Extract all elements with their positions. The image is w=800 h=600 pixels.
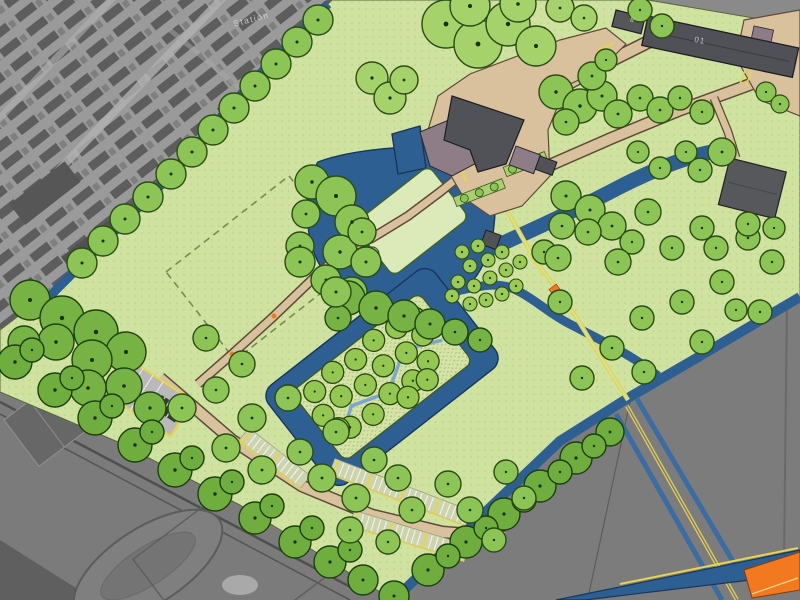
- tree-center-dot: [589, 209, 592, 212]
- tree-center-dot: [373, 459, 376, 462]
- tree-center-dot: [275, 63, 278, 66]
- tree-center-dot: [747, 237, 749, 239]
- tree-center-dot: [583, 17, 586, 20]
- tree-center-dot: [501, 251, 503, 253]
- tree-center-dot: [643, 371, 645, 373]
- tree-center-dot: [191, 457, 193, 459]
- tree-center-dot: [681, 301, 683, 303]
- tree-center-dot: [411, 509, 414, 512]
- tree-center-dot: [374, 306, 377, 309]
- tree-center-dot: [349, 529, 352, 532]
- tree-center-dot: [659, 109, 662, 112]
- tree-center-dot: [559, 301, 561, 303]
- tree-center-dot: [701, 341, 703, 343]
- tree-center-dot: [505, 471, 507, 473]
- tree-center-dot: [293, 540, 296, 543]
- tree-center-dot: [747, 223, 749, 225]
- tree-center-dot: [53, 388, 56, 391]
- tree-center-dot: [111, 405, 113, 407]
- tree-center-dot: [538, 484, 541, 487]
- tree-center-dot: [86, 386, 90, 390]
- tree-center-dot: [469, 265, 471, 267]
- tree-center-dot: [543, 251, 545, 253]
- tree-center-dot: [335, 431, 338, 434]
- tree-center-dot: [469, 303, 471, 305]
- tree-center-dot: [451, 295, 453, 297]
- tree-center-dot: [609, 431, 612, 434]
- tree-center-dot: [147, 196, 150, 199]
- tree-center-dot: [321, 477, 324, 480]
- tree-center-dot: [502, 512, 505, 515]
- tree-center-dot: [205, 337, 208, 340]
- tree-center-dot: [402, 314, 405, 317]
- tree-center-dot: [661, 25, 663, 27]
- tree-center-dot: [515, 285, 517, 287]
- tree-center-dot: [447, 483, 450, 486]
- tree-center-dot: [587, 231, 590, 234]
- tree-center-dot: [611, 347, 613, 349]
- tree-center-dot: [701, 227, 703, 229]
- tree-center-dot: [54, 340, 58, 344]
- tree-center-dot: [233, 107, 236, 110]
- tree-icon: [546, 0, 574, 22]
- tree-center-dot: [554, 90, 557, 93]
- tree-center-dot: [310, 180, 313, 183]
- tree-center-dot: [523, 497, 525, 499]
- tree-center-dot: [334, 194, 338, 198]
- tree-center-dot: [611, 225, 614, 228]
- tree-center-dot: [133, 443, 136, 446]
- tree-center-dot: [170, 173, 173, 176]
- tree-center-dot: [477, 245, 479, 247]
- tree-center-dot: [253, 516, 256, 519]
- tree-center-dot: [28, 298, 32, 302]
- tree-center-dot: [659, 167, 661, 169]
- tree-center-dot: [601, 95, 604, 98]
- tree-center-dot: [31, 349, 33, 351]
- tree-center-dot: [93, 416, 96, 419]
- tree-center-dot: [365, 261, 368, 264]
- tree-center-dot: [388, 96, 391, 99]
- tree-center-dot: [403, 79, 406, 82]
- tree-center-dot: [299, 451, 302, 454]
- tree-center-dot: [505, 269, 507, 271]
- tree-center-dot: [561, 225, 564, 228]
- tree-center-dot: [641, 317, 643, 319]
- tree-center-dot: [429, 323, 432, 326]
- tree-center-dot: [685, 151, 687, 153]
- tree-center-dot: [771, 261, 773, 263]
- tree-center-dot: [81, 262, 84, 265]
- tree-center-dot: [447, 555, 449, 557]
- tree-center-dot: [251, 417, 254, 420]
- tree-center-dot: [759, 311, 761, 313]
- tree-center-dot: [559, 7, 562, 10]
- tree-center-dot: [225, 447, 228, 450]
- tree-center-dot: [485, 527, 487, 529]
- tree-center-dot: [581, 377, 583, 379]
- tree-center-dot: [94, 330, 98, 334]
- tree-center-dot: [534, 44, 538, 48]
- tree-center-dot: [671, 247, 673, 249]
- tree-center-dot: [765, 91, 767, 93]
- tree-center-dot: [271, 505, 273, 507]
- tree-center-dot: [261, 469, 264, 472]
- tree-center-dot: [397, 477, 400, 480]
- tree-center-dot: [468, 4, 472, 8]
- tree-center-dot: [591, 75, 594, 78]
- tree-center-dot: [254, 85, 257, 88]
- tree-center-dot: [181, 407, 184, 410]
- tree-center-dot: [350, 220, 353, 223]
- tree-center-dot: [565, 195, 568, 198]
- tree-center-dot: [124, 218, 127, 221]
- tree-center-dot: [305, 213, 308, 216]
- tree-center-dot: [241, 363, 244, 366]
- tree-center-dot: [473, 285, 475, 287]
- tree-center-dot: [489, 277, 491, 279]
- tree-center-dot: [485, 299, 487, 301]
- tree-center-dot: [457, 281, 459, 283]
- tree-center-dot: [338, 250, 341, 253]
- tree-center-dot: [317, 19, 320, 22]
- tree-center-dot: [701, 111, 703, 113]
- tree-center-dot: [637, 151, 639, 153]
- tree-center-dot: [559, 471, 561, 473]
- tree-center-dot: [631, 241, 633, 243]
- tree-center-dot: [173, 468, 176, 471]
- tree-center-dot: [287, 397, 290, 400]
- tree-center-dot: [349, 549, 351, 551]
- tree-center-dot: [557, 257, 560, 260]
- tree-center-dot: [213, 492, 216, 495]
- tree-center-dot: [721, 151, 724, 154]
- tree-center-dot: [311, 527, 313, 529]
- tree-center-dot: [337, 317, 340, 320]
- masterplan-canvas[interactable]: Station: [0, 0, 800, 600]
- tree-center-dot: [574, 456, 577, 459]
- tree-center-dot: [647, 211, 650, 214]
- tree-center-dot: [355, 497, 358, 500]
- tree-center-dot: [779, 103, 781, 105]
- tree-center-dot: [773, 227, 775, 229]
- tree-center-dot: [387, 541, 389, 543]
- tree-center-dot: [593, 445, 595, 447]
- tree-center-dot: [519, 261, 521, 263]
- tree-center-dot: [361, 231, 364, 234]
- tree-center-dot: [617, 113, 620, 116]
- tree-center-dot: [578, 104, 581, 107]
- tree-center-dot: [639, 97, 642, 100]
- tree-center-dot: [516, 2, 520, 6]
- tree-center-dot: [617, 261, 620, 264]
- tree-center-dot: [721, 281, 723, 283]
- tree-center-dot: [735, 309, 737, 311]
- tree-center-dot: [565, 121, 568, 124]
- tree-center-dot: [426, 568, 429, 571]
- masterplan-svg: Station: [0, 0, 800, 600]
- tree-center-dot: [639, 9, 641, 11]
- tree-center-dot: [461, 251, 463, 253]
- tree-center-dot: [679, 97, 681, 99]
- tree-center-dot: [122, 384, 126, 388]
- tree-center-dot: [469, 509, 472, 512]
- tree-center-dot: [60, 316, 64, 320]
- tree-center-dot: [444, 22, 449, 27]
- tree-center-dot: [487, 259, 489, 261]
- tree-center-dot: [506, 22, 510, 26]
- tree-center-dot: [13, 360, 16, 363]
- tree-center-dot: [231, 481, 233, 483]
- tree-center-dot: [605, 59, 607, 61]
- tree-center-dot: [362, 579, 365, 582]
- tree-center-dot: [191, 151, 194, 154]
- tree-center-dot: [370, 76, 373, 79]
- tree-center-dot: [151, 431, 153, 433]
- tree-center-dot: [454, 331, 457, 334]
- tree-center-dot: [148, 406, 151, 409]
- tree-center-dot: [501, 293, 503, 295]
- tree-center-dot: [215, 389, 218, 392]
- tree-center-dot: [299, 261, 302, 264]
- tree-center-dot: [212, 129, 215, 132]
- tree-center-dot: [393, 595, 396, 598]
- tree-center-dot: [102, 240, 105, 243]
- tree-center-dot: [476, 42, 481, 47]
- route-marker-dot: [272, 314, 277, 319]
- tree-center-dot: [699, 169, 701, 171]
- tree-center-dot: [124, 350, 128, 354]
- tree-center-dot: [479, 339, 481, 341]
- tree-center-dot: [715, 247, 717, 249]
- tree-center-dot: [71, 377, 73, 379]
- tree-center-dot: [328, 560, 331, 563]
- tree-center-dot: [464, 540, 467, 543]
- tree-center-dot: [493, 539, 495, 541]
- tree-center-dot: [90, 358, 94, 362]
- tree-center-dot: [335, 291, 338, 294]
- tree-center-dot: [296, 41, 299, 44]
